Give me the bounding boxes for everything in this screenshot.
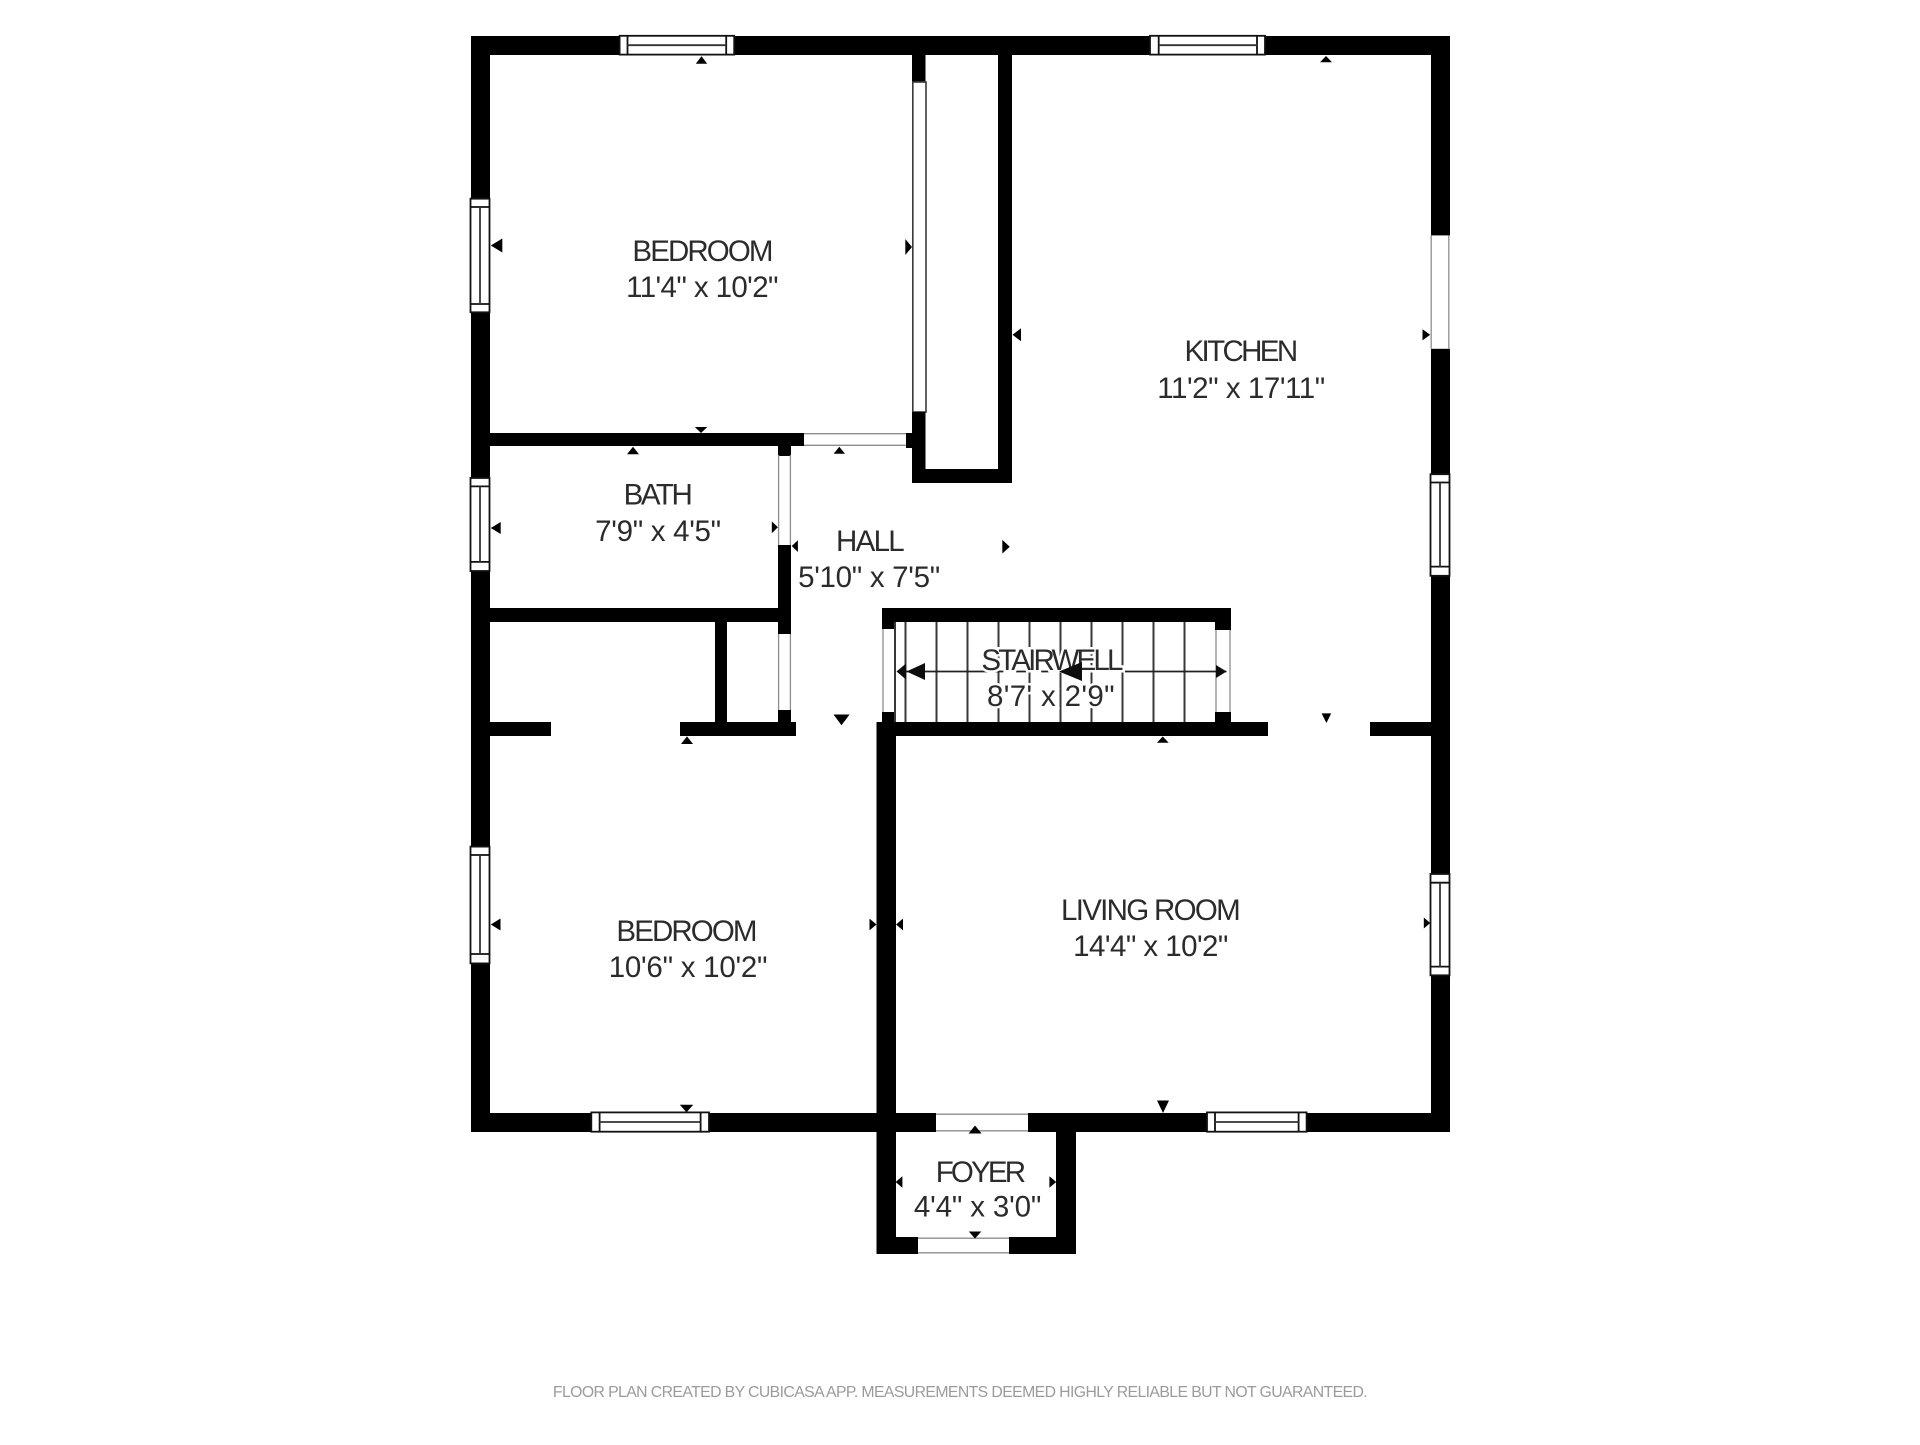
svg-text:10'6" x 10'2": 10'6" x 10'2" (609, 951, 768, 984)
svg-text:4'4" x 3'0": 4'4" x 3'0" (914, 1191, 1041, 1224)
svg-text:5'10" x 7'5": 5'10" x 7'5" (798, 561, 940, 594)
svg-text:8'7' x 2'9": 8'7' x 2'9" (987, 680, 1115, 713)
svg-text:11'2" x 17'11": 11'2" x 17'11" (1157, 372, 1325, 405)
svg-text:STAIRWELL: STAIRWELL (981, 644, 1123, 677)
svg-text:LIVING ROOM: LIVING ROOM (1061, 894, 1239, 927)
svg-text:7'9" x 4'5": 7'9" x 4'5" (595, 515, 721, 548)
svg-text:HALL: HALL (836, 525, 904, 558)
svg-text:BEDROOM: BEDROOM (632, 235, 771, 268)
svg-text:FOYER: FOYER (936, 1156, 1025, 1189)
svg-text:11'4" x 10'2": 11'4" x 10'2" (626, 271, 778, 304)
svg-text:FLOOR PLAN CREATED BY CUBICASA: FLOOR PLAN CREATED BY CUBICASA APP. MEAS… (553, 1384, 1367, 1401)
svg-text:BEDROOM: BEDROOM (616, 915, 755, 948)
svg-text:KITCHEN: KITCHEN (1184, 335, 1295, 368)
svg-text:14'4" x 10'2": 14'4" x 10'2" (1073, 930, 1228, 963)
svg-text:BATH: BATH (624, 479, 691, 512)
